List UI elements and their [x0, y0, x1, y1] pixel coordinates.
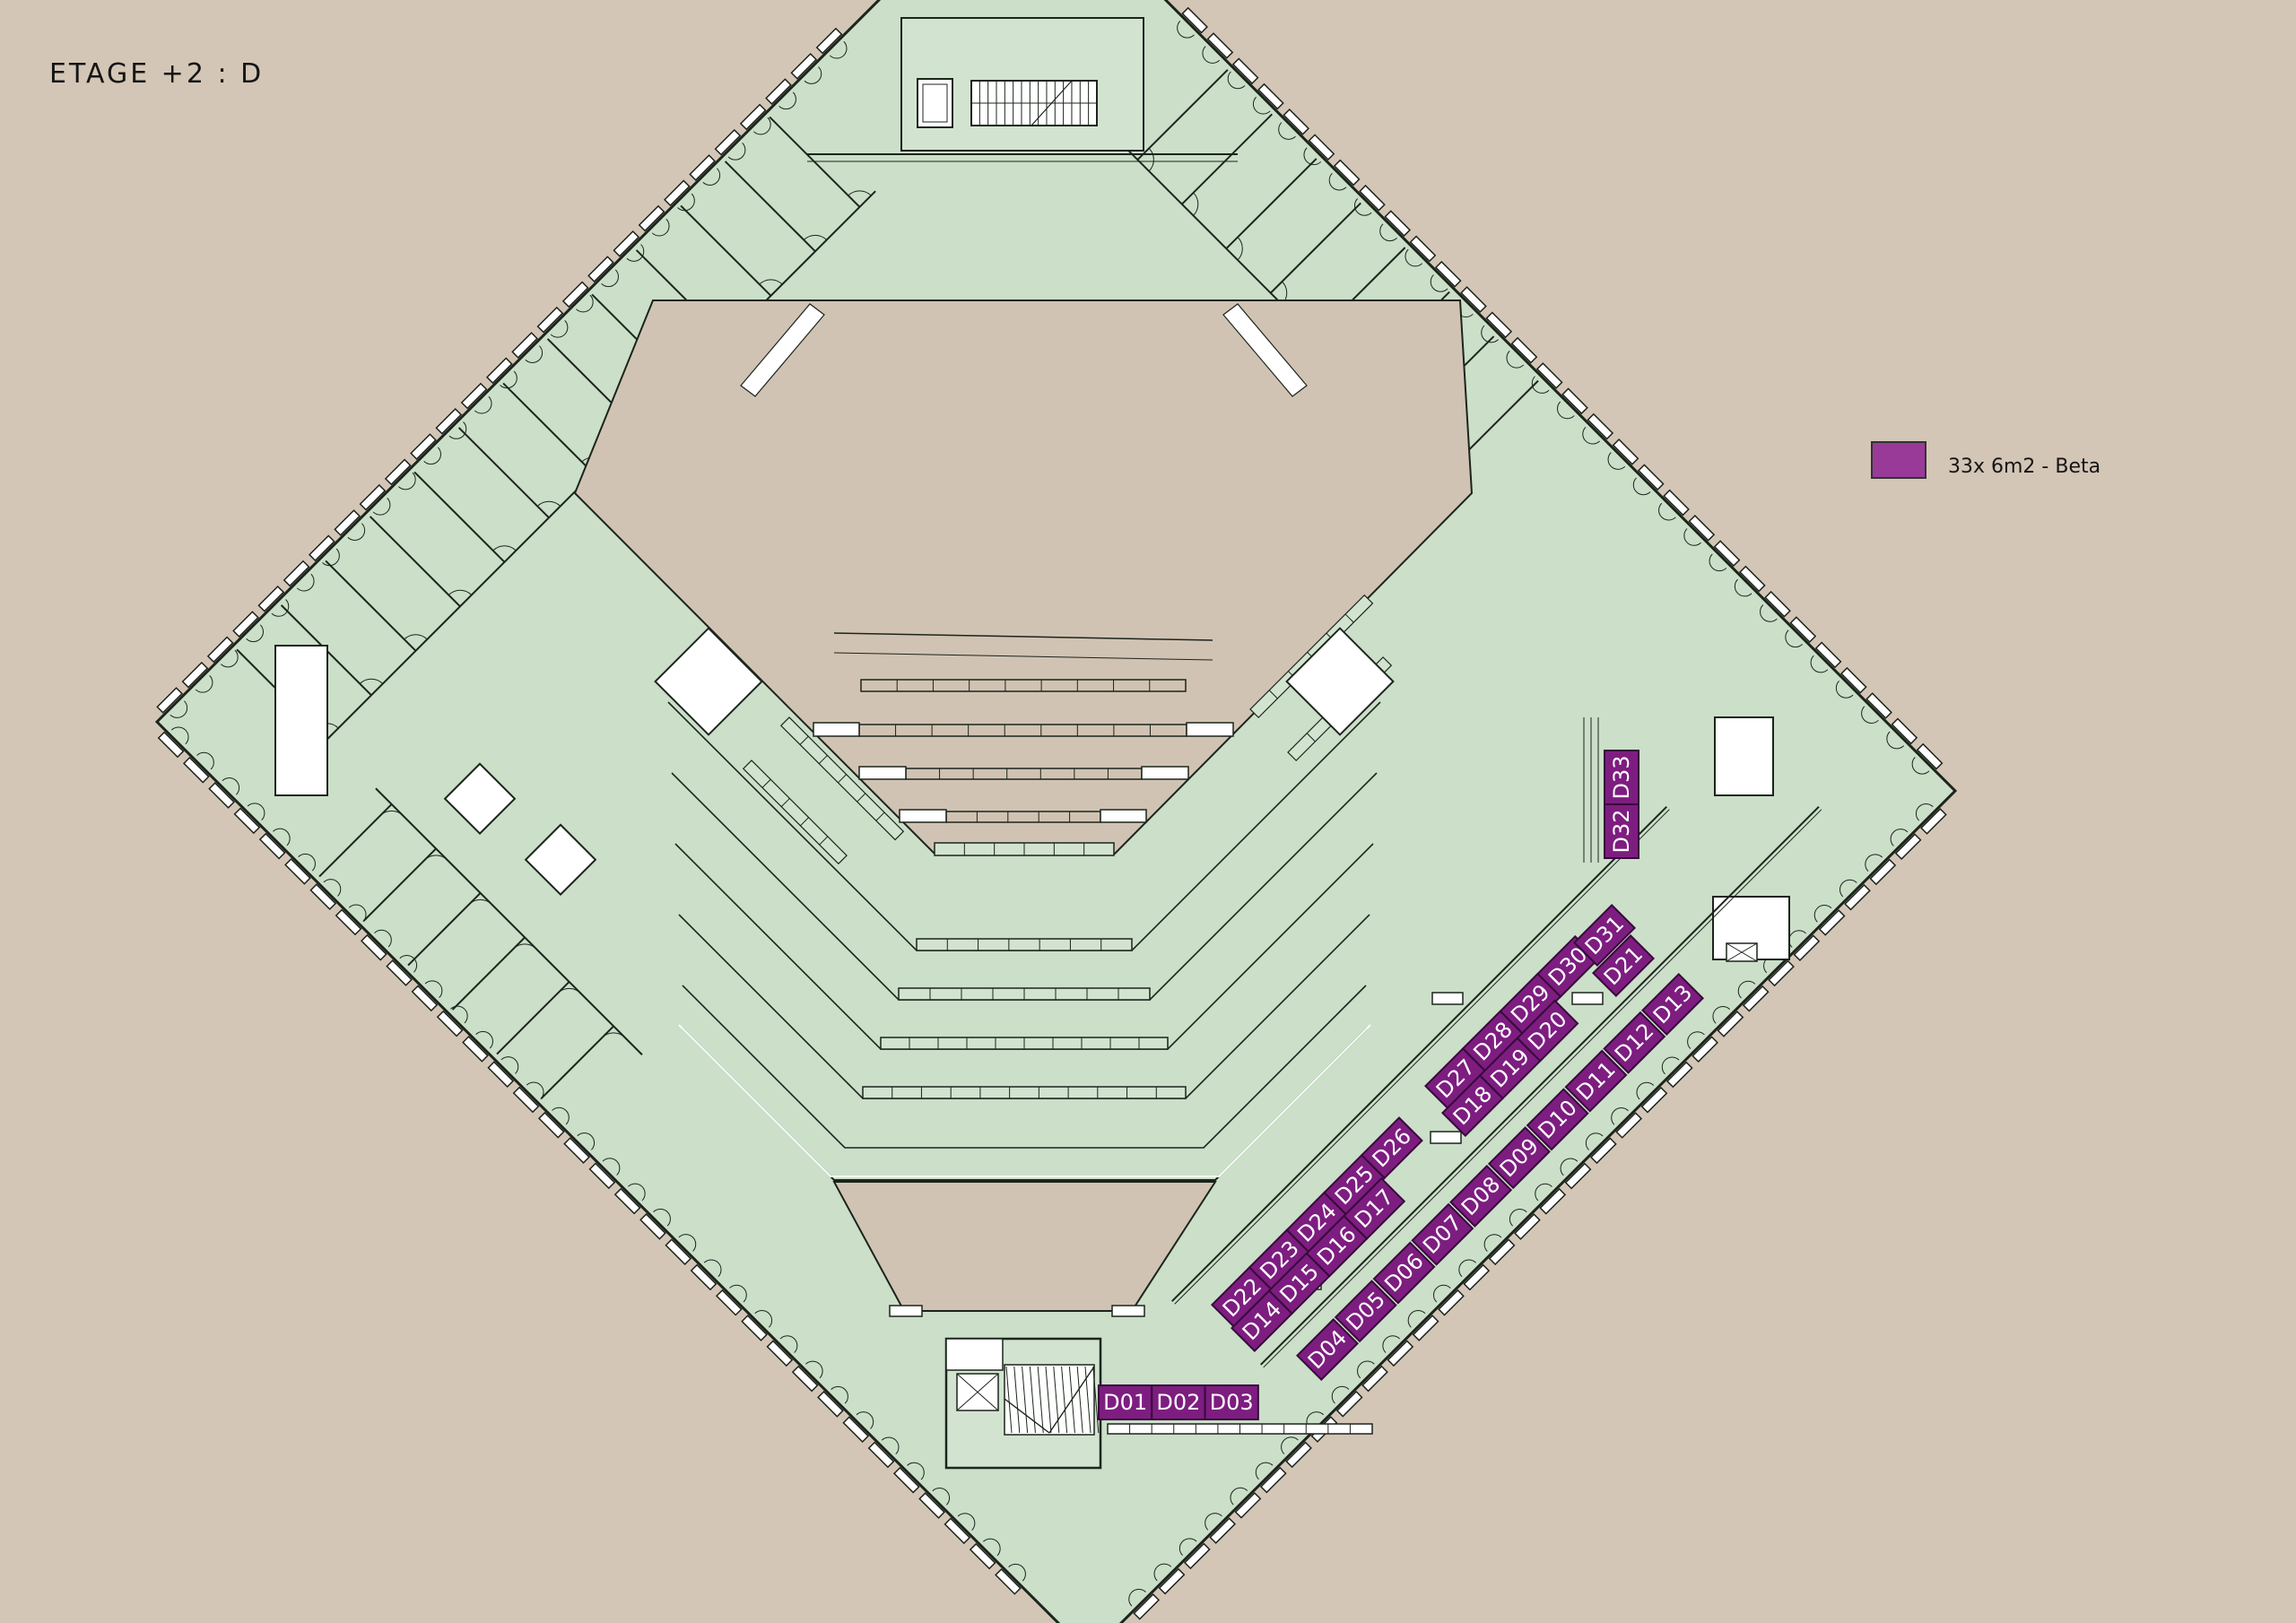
svg-text:D03: D03 — [1210, 1390, 1254, 1415]
page-title: ETAGE +2 : D — [49, 58, 264, 90]
svg-text:D02: D02 — [1156, 1390, 1200, 1415]
floor-plan: D01D02D03D04D05D06D07D08D09D10D11D12D13D… — [0, 0, 2296, 1623]
screenshot-root: D01D02D03D04D05D06D07D08D09D10D11D12D13D… — [0, 0, 2296, 1623]
svg-text:D01: D01 — [1103, 1390, 1147, 1415]
booth-D02[interactable]: D02 — [1152, 1385, 1205, 1419]
booth-D03[interactable]: D03 — [1205, 1385, 1258, 1419]
plan-graphics: D01D02D03D04D05D06D07D08D09D10D11D12D13D… — [0, 0, 2296, 1623]
stair-core-bottom — [946, 1339, 1100, 1468]
booth-D33[interactable]: D33 — [1605, 751, 1639, 804]
svg-text:D32: D32 — [1609, 809, 1634, 853]
booth-D32[interactable]: D32 — [1605, 804, 1639, 858]
svg-text:D33: D33 — [1609, 755, 1634, 799]
legend-label: 33x 6m2 - Beta — [1948, 456, 2100, 478]
booth-D01[interactable]: D01 — [1099, 1385, 1152, 1419]
legend-swatch — [1872, 442, 1926, 478]
